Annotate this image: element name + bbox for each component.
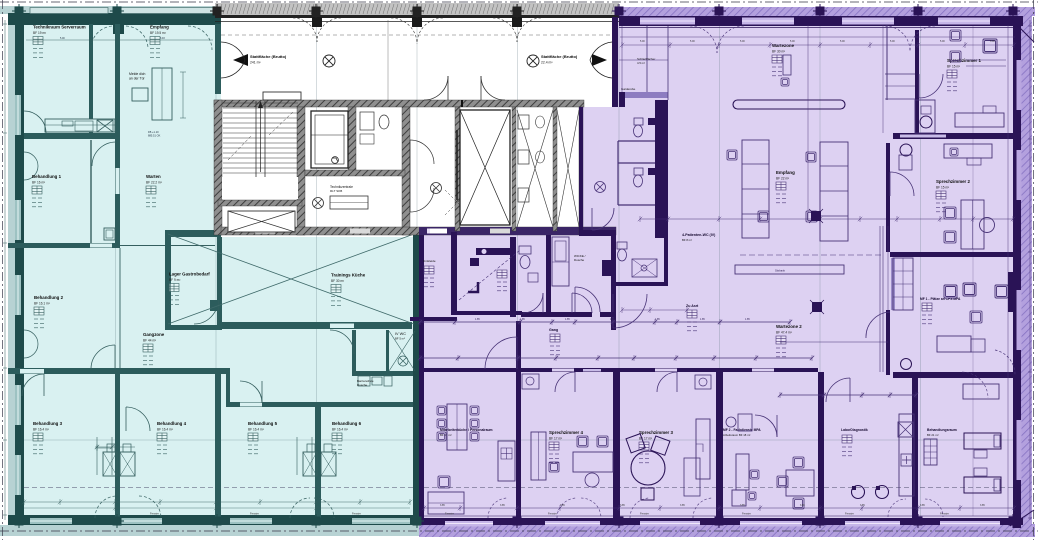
svg-text:Garderobe: Garderobe (621, 87, 636, 91)
svg-text:1.85: 1.85 (655, 318, 660, 321)
svg-text:1.85: 1.85 (700, 318, 705, 321)
svg-text:BF 16.1 m²: BF 16.1 m² (34, 302, 50, 306)
svg-text:BF 16.4 m²: BF 16.4 m² (248, 428, 264, 432)
svg-text:3.85: 3.85 (740, 504, 745, 507)
svg-text:Wartezone: Wartezone (772, 43, 795, 48)
svg-text:FB +1.10: FB +1.10 (148, 130, 159, 134)
svg-text:5.00: 5.00 (640, 40, 645, 43)
svg-text:BF 47.4 m²: BF 47.4 m² (776, 331, 792, 335)
svg-text:BF 22.2 m²: BF 22.2 m² (146, 181, 162, 185)
svg-text:3.93: 3.93 (160, 37, 165, 40)
svg-text:1.85: 1.85 (745, 318, 750, 321)
svg-text:Behandlung 5: Behandlung 5 (248, 421, 278, 426)
svg-text:Wartezone 2: Wartezone 2 (776, 324, 802, 329)
svg-text:Zu Arzt: Zu Arzt (686, 304, 699, 308)
svg-text:4.5 m²: 4.5 m² (637, 61, 645, 65)
svg-text:Dusche: Dusche (357, 383, 368, 387)
svg-text:BF 15 m²: BF 15 m² (936, 186, 949, 190)
svg-text:3.85: 3.85 (620, 504, 625, 507)
svg-text:Umkleide: Umkleide (423, 259, 436, 263)
svg-text:Fenster: Fenster (250, 512, 259, 516)
svg-text:an der Tür: an der Tür (129, 77, 145, 81)
svg-text:BF 16.4 m²: BF 16.4 m² (332, 428, 348, 432)
svg-text:Empfang: Empfang (776, 170, 795, 175)
svg-text:Sprechzimmer 2: Sprechzimmer 2 (936, 179, 970, 184)
svg-text:241 m²: 241 m² (250, 61, 261, 65)
svg-text:BF 16 m²: BF 16 m² (32, 181, 45, 185)
svg-text:Stattfläche (Brutto): Stattfläche (Brutto) (541, 54, 578, 59)
svg-text:1.85: 1.85 (520, 318, 525, 321)
svg-text:Behandlung 4: Behandlung 4 (157, 421, 187, 426)
svg-text:BF 22 m²: BF 22 m² (776, 177, 789, 181)
svg-text:Fenster: Fenster (445, 512, 454, 516)
svg-text:BF 8 m²: BF 8 m² (682, 238, 692, 242)
svg-text:BF 19.5 m²: BF 19.5 m² (150, 31, 166, 35)
svg-text:BF 9 m²: BF 9 m² (169, 278, 180, 282)
svg-text:BF 30 m²: BF 30 m² (772, 50, 785, 54)
svg-text:3.85: 3.85 (800, 504, 805, 507)
svg-text:22.4 m²: 22.4 m² (541, 61, 553, 65)
svg-text:3.85: 3.85 (440, 504, 445, 507)
svg-text:5.00: 5.00 (990, 40, 995, 43)
svg-text:5.00: 5.00 (690, 40, 695, 43)
svg-text:Behandlung 2: Behandlung 2 (34, 295, 64, 300)
svg-text:5.00: 5.00 (60, 37, 65, 40)
svg-text:BF 16.4 m²: BF 16.4 m² (33, 428, 49, 432)
svg-text:3.85: 3.85 (980, 504, 985, 507)
svg-text:BF 30 m²: BF 30 m² (331, 279, 344, 283)
svg-text:Stattfläche (Brutto): Stattfläche (Brutto) (250, 54, 287, 59)
svg-text:Lager Gastrobedarf: Lager Gastrobedarf (169, 272, 210, 277)
svg-text:5.00: 5.00 (890, 40, 895, 43)
svg-text:5.00: 5.00 (940, 40, 945, 43)
svg-text:Arbeitsraum BF 18 m²: Arbeitsraum BF 18 m² (723, 433, 750, 437)
svg-text:3.85: 3.85 (920, 504, 925, 507)
svg-text:BF 16.4 m²: BF 16.4 m² (157, 428, 173, 432)
svg-text:3.85: 3.85 (500, 504, 505, 507)
svg-text:Behandlung 3: Behandlung 3 (33, 421, 63, 426)
svg-text:5.00: 5.00 (740, 40, 745, 43)
svg-text:5.00: 5.00 (840, 40, 845, 43)
svg-text:Gangzone: Gangzone (143, 332, 165, 337)
svg-text:Melde dich: Melde dich (129, 72, 146, 76)
svg-text:1.85: 1.85 (430, 318, 435, 321)
svg-text:Empfang: Empfang (150, 25, 169, 30)
svg-text:BF 44 m²: BF 44 m² (143, 339, 156, 343)
svg-text:Sprechzimmer 3: Sprechzimmer 3 (639, 430, 673, 435)
svg-text:Sprechzimmer 4: Sprechzimmer 4 (549, 430, 583, 435)
svg-text:IV WC: IV WC (395, 332, 406, 336)
svg-text:BF 5 m²: BF 5 m² (395, 337, 405, 341)
svg-text:1.85: 1.85 (565, 318, 570, 321)
svg-text:Fenster: Fenster (742, 512, 751, 516)
svg-text:Behandlung 1: Behandlung 1 (32, 174, 62, 179)
svg-text:Warten: Warten (146, 174, 161, 179)
svg-text:BF 19 m²: BF 19 m² (33, 31, 46, 35)
svg-text:LaborDiagnostik: LaborDiagnostik (841, 428, 868, 432)
svg-text:BF 15 m²: BF 15 m² (947, 65, 960, 69)
svg-text:Mitarbeiterküche / Personalrau: Mitarbeiterküche / Personalraum (440, 428, 493, 432)
svg-text:Gang: Gang (549, 328, 558, 332)
svg-text:Fenster: Fenster (845, 512, 854, 516)
svg-text:885.51 OK: 885.51 OK (148, 134, 161, 138)
svg-text:Behandlungsraum: Behandlungsraum (927, 428, 957, 432)
svg-text:Sitzbank: Sitzbank (775, 269, 786, 273)
svg-text:1.85: 1.85 (475, 318, 480, 321)
svg-text:Fenster: Fenster (548, 512, 557, 516)
svg-text:Fenster: Fenster (352, 512, 361, 516)
svg-text:Behandlung 6: Behandlung 6 (332, 421, 362, 426)
svg-text:Trainings Küche: Trainings Küche (331, 273, 366, 278)
svg-text:BF 21 m²: BF 21 m² (927, 433, 939, 437)
svg-text:Dusche: Dusche (574, 258, 585, 262)
svg-text:3.85: 3.85 (560, 504, 565, 507)
svg-text:Fenster: Fenster (150, 512, 159, 516)
svg-text:Fenster: Fenster (640, 512, 649, 516)
svg-text:Technikraum Serverraum: Technikraum Serverraum (33, 25, 86, 30)
svg-text:5.00: 5.00 (790, 40, 795, 43)
svg-text:RLT SKB: RLT SKB (330, 189, 342, 193)
svg-text:3.85: 3.85 (860, 504, 865, 507)
svg-text:BF 17 m²: BF 17 m² (549, 437, 562, 441)
svg-text:4-Patienten-WC (IV): 4-Patienten-WC (IV) (682, 233, 716, 237)
svg-text:Fenster: Fenster (940, 512, 949, 516)
svg-text:1.85: 1.85 (610, 318, 615, 321)
svg-text:3.85: 3.85 (680, 504, 685, 507)
